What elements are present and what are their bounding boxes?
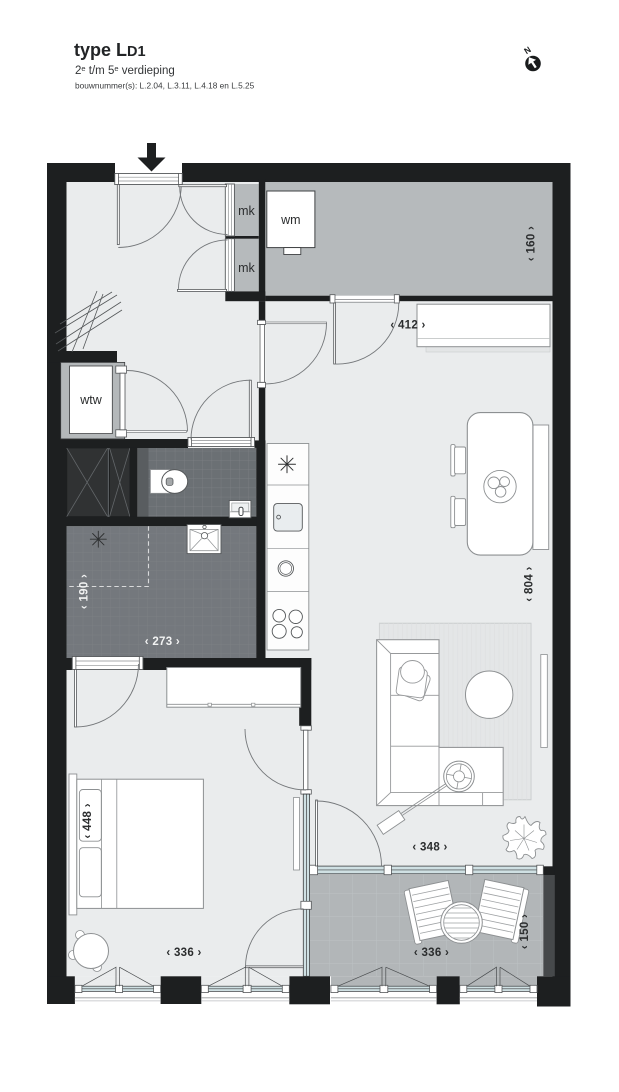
svg-text:wm: wm: [280, 213, 300, 227]
svg-text:N: N: [522, 44, 533, 56]
svg-text:‹ 412 ›: ‹ 412 ›: [390, 320, 425, 332]
svg-text:‹ 348 ›: ‹ 348 ›: [412, 842, 447, 854]
svg-text:‹ 160 ›: ‹ 160 ›: [526, 226, 538, 261]
svg-text:‹ 448 ›: ‹ 448 ›: [82, 803, 94, 838]
svg-text:‹ 190 ›: ‹ 190 ›: [79, 574, 91, 609]
svg-text:mk: mk: [238, 261, 255, 275]
svg-text:‹ 273 ›: ‹ 273 ›: [145, 636, 180, 648]
svg-text:‹ 150 ›: ‹ 150 ›: [519, 914, 531, 949]
svg-text:bouwnummer(s): L.2.04, L.3.11,: bouwnummer(s): L.2.04, L.3.11, L.4.18 en…: [75, 81, 255, 91]
svg-text:mk: mk: [238, 204, 255, 218]
svg-text:‹ 336 ›: ‹ 336 ›: [414, 947, 449, 959]
svg-text:‹ 336 ›: ‹ 336 ›: [166, 947, 201, 959]
svg-text:‹ 804 ›: ‹ 804 ›: [524, 566, 536, 601]
svg-text:2e t/m 5e verdieping: 2e t/m 5e verdieping: [75, 64, 175, 77]
svg-text:type LD1: type LD1: [74, 40, 146, 60]
svg-text:wtw: wtw: [79, 393, 103, 407]
